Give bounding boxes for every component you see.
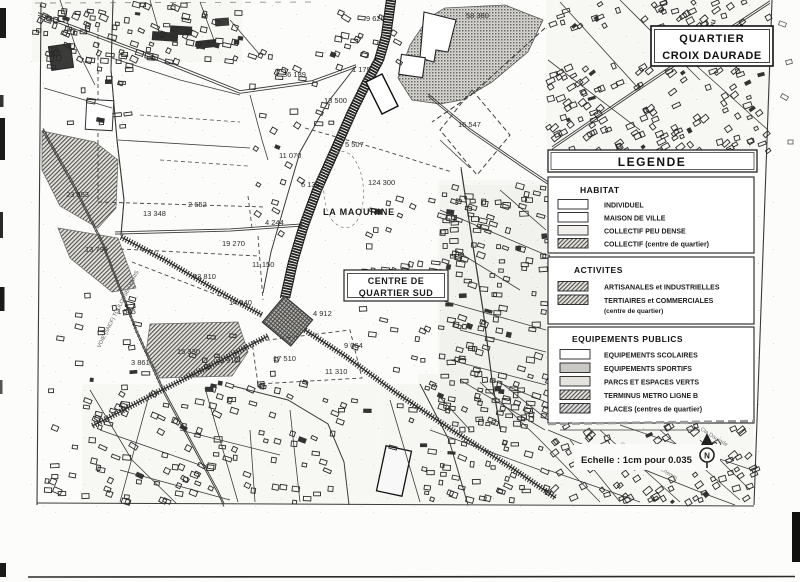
- svg-text:1 179: 1 179: [352, 65, 371, 74]
- svg-text:124 300: 124 300: [368, 178, 395, 187]
- svg-text:HABITAT: HABITAT: [580, 185, 620, 195]
- svg-text:Echelle : 1cm pour 0.035: Echelle : 1cm pour 0.035: [581, 455, 693, 466]
- svg-text:5 507: 5 507: [345, 140, 364, 149]
- svg-text:COLLECTIF (centre de quartier: COLLECTIF (centre de quartier): [604, 242, 709, 249]
- svg-text:MAISON DE VILLE: MAISON DE VILLE: [604, 216, 666, 223]
- svg-text:INDIVIDUEL: INDIVIDUEL: [604, 203, 644, 210]
- svg-text:15 330: 15 330: [177, 347, 200, 356]
- svg-text:(centre de quartier): (centre de quartier): [604, 308, 663, 315]
- svg-text:16 547: 16 547: [458, 120, 481, 129]
- svg-text:36 189: 36 189: [283, 70, 306, 79]
- svg-text:ACTIVITES: ACTIVITES: [574, 265, 623, 275]
- svg-text:23 953: 23 953: [66, 190, 89, 199]
- svg-text:43 810: 43 810: [193, 272, 216, 281]
- svg-text:TERMINUS METRO LIGNE B: TERMINUS METRO LIGNE B: [604, 393, 698, 400]
- svg-text:19 270: 19 270: [222, 239, 245, 248]
- svg-text:EQUIPEMENTS PUBLICS: EQUIPEMENTS PUBLICS: [572, 334, 683, 344]
- svg-text:N: N: [704, 452, 710, 461]
- svg-text:EQUIPEMENTS SPORTIFS: EQUIPEMENTS SPORTIFS: [604, 366, 692, 373]
- svg-text:11 310: 11 310: [325, 367, 347, 376]
- svg-text:9 626: 9 626: [366, 14, 385, 23]
- svg-text:ARTISANALES et INDUSTRIELLES: ARTISANALES et INDUSTRIELLES: [604, 285, 720, 292]
- svg-text:4 912: 4 912: [313, 309, 332, 318]
- svg-text:COLLECTIF PEU DENSE: COLLECTIF PEU DENSE: [604, 229, 686, 236]
- svg-text:6 132: 6 132: [301, 180, 320, 189]
- svg-text:4 244: 4 244: [265, 218, 284, 227]
- svg-text:PLACES (centres de quartier): PLACES (centres de quartier): [604, 407, 702, 414]
- svg-text:11 070: 11 070: [279, 151, 301, 160]
- svg-text:3 861: 3 861: [131, 358, 150, 367]
- svg-text:QUARTIER: QUARTIER: [679, 33, 744, 45]
- svg-text:1 917: 1 917: [220, 356, 239, 365]
- svg-text:17 510: 17 510: [273, 354, 296, 363]
- svg-text:14 540: 14 540: [229, 298, 252, 307]
- svg-text:13 348: 13 348: [143, 209, 166, 218]
- svg-text:LEGENDE: LEGENDE: [618, 155, 687, 169]
- svg-text:1 545: 1 545: [117, 307, 136, 316]
- svg-text:2 652: 2 652: [188, 200, 207, 209]
- svg-text:EQUIPEMENTS SCOLAIRES: EQUIPEMENTS SCOLAIRES: [604, 353, 698, 360]
- svg-text:9 064: 9 064: [344, 341, 363, 350]
- svg-text:11 150: 11 150: [252, 260, 274, 269]
- svg-text:58 380: 58 380: [466, 11, 489, 20]
- svg-text:13 799: 13 799: [85, 245, 108, 254]
- svg-text:CROIX DAURADE: CROIX DAURADE: [662, 50, 761, 62]
- svg-text:TERTIAIRES et COMMERCIALES: TERTIAIRES et COMMERCIALES: [604, 298, 714, 305]
- svg-text:13 500: 13 500: [324, 96, 347, 105]
- svg-text:LA MAOURINE: LA MAOURINE: [323, 207, 395, 217]
- svg-text:CENTRE DE: CENTRE DE: [368, 276, 425, 286]
- svg-text:PARCS ET ESPACES VERTS: PARCS ET ESPACES VERTS: [604, 380, 699, 387]
- svg-text:QUARTIER SUD: QUARTIER SUD: [359, 288, 434, 298]
